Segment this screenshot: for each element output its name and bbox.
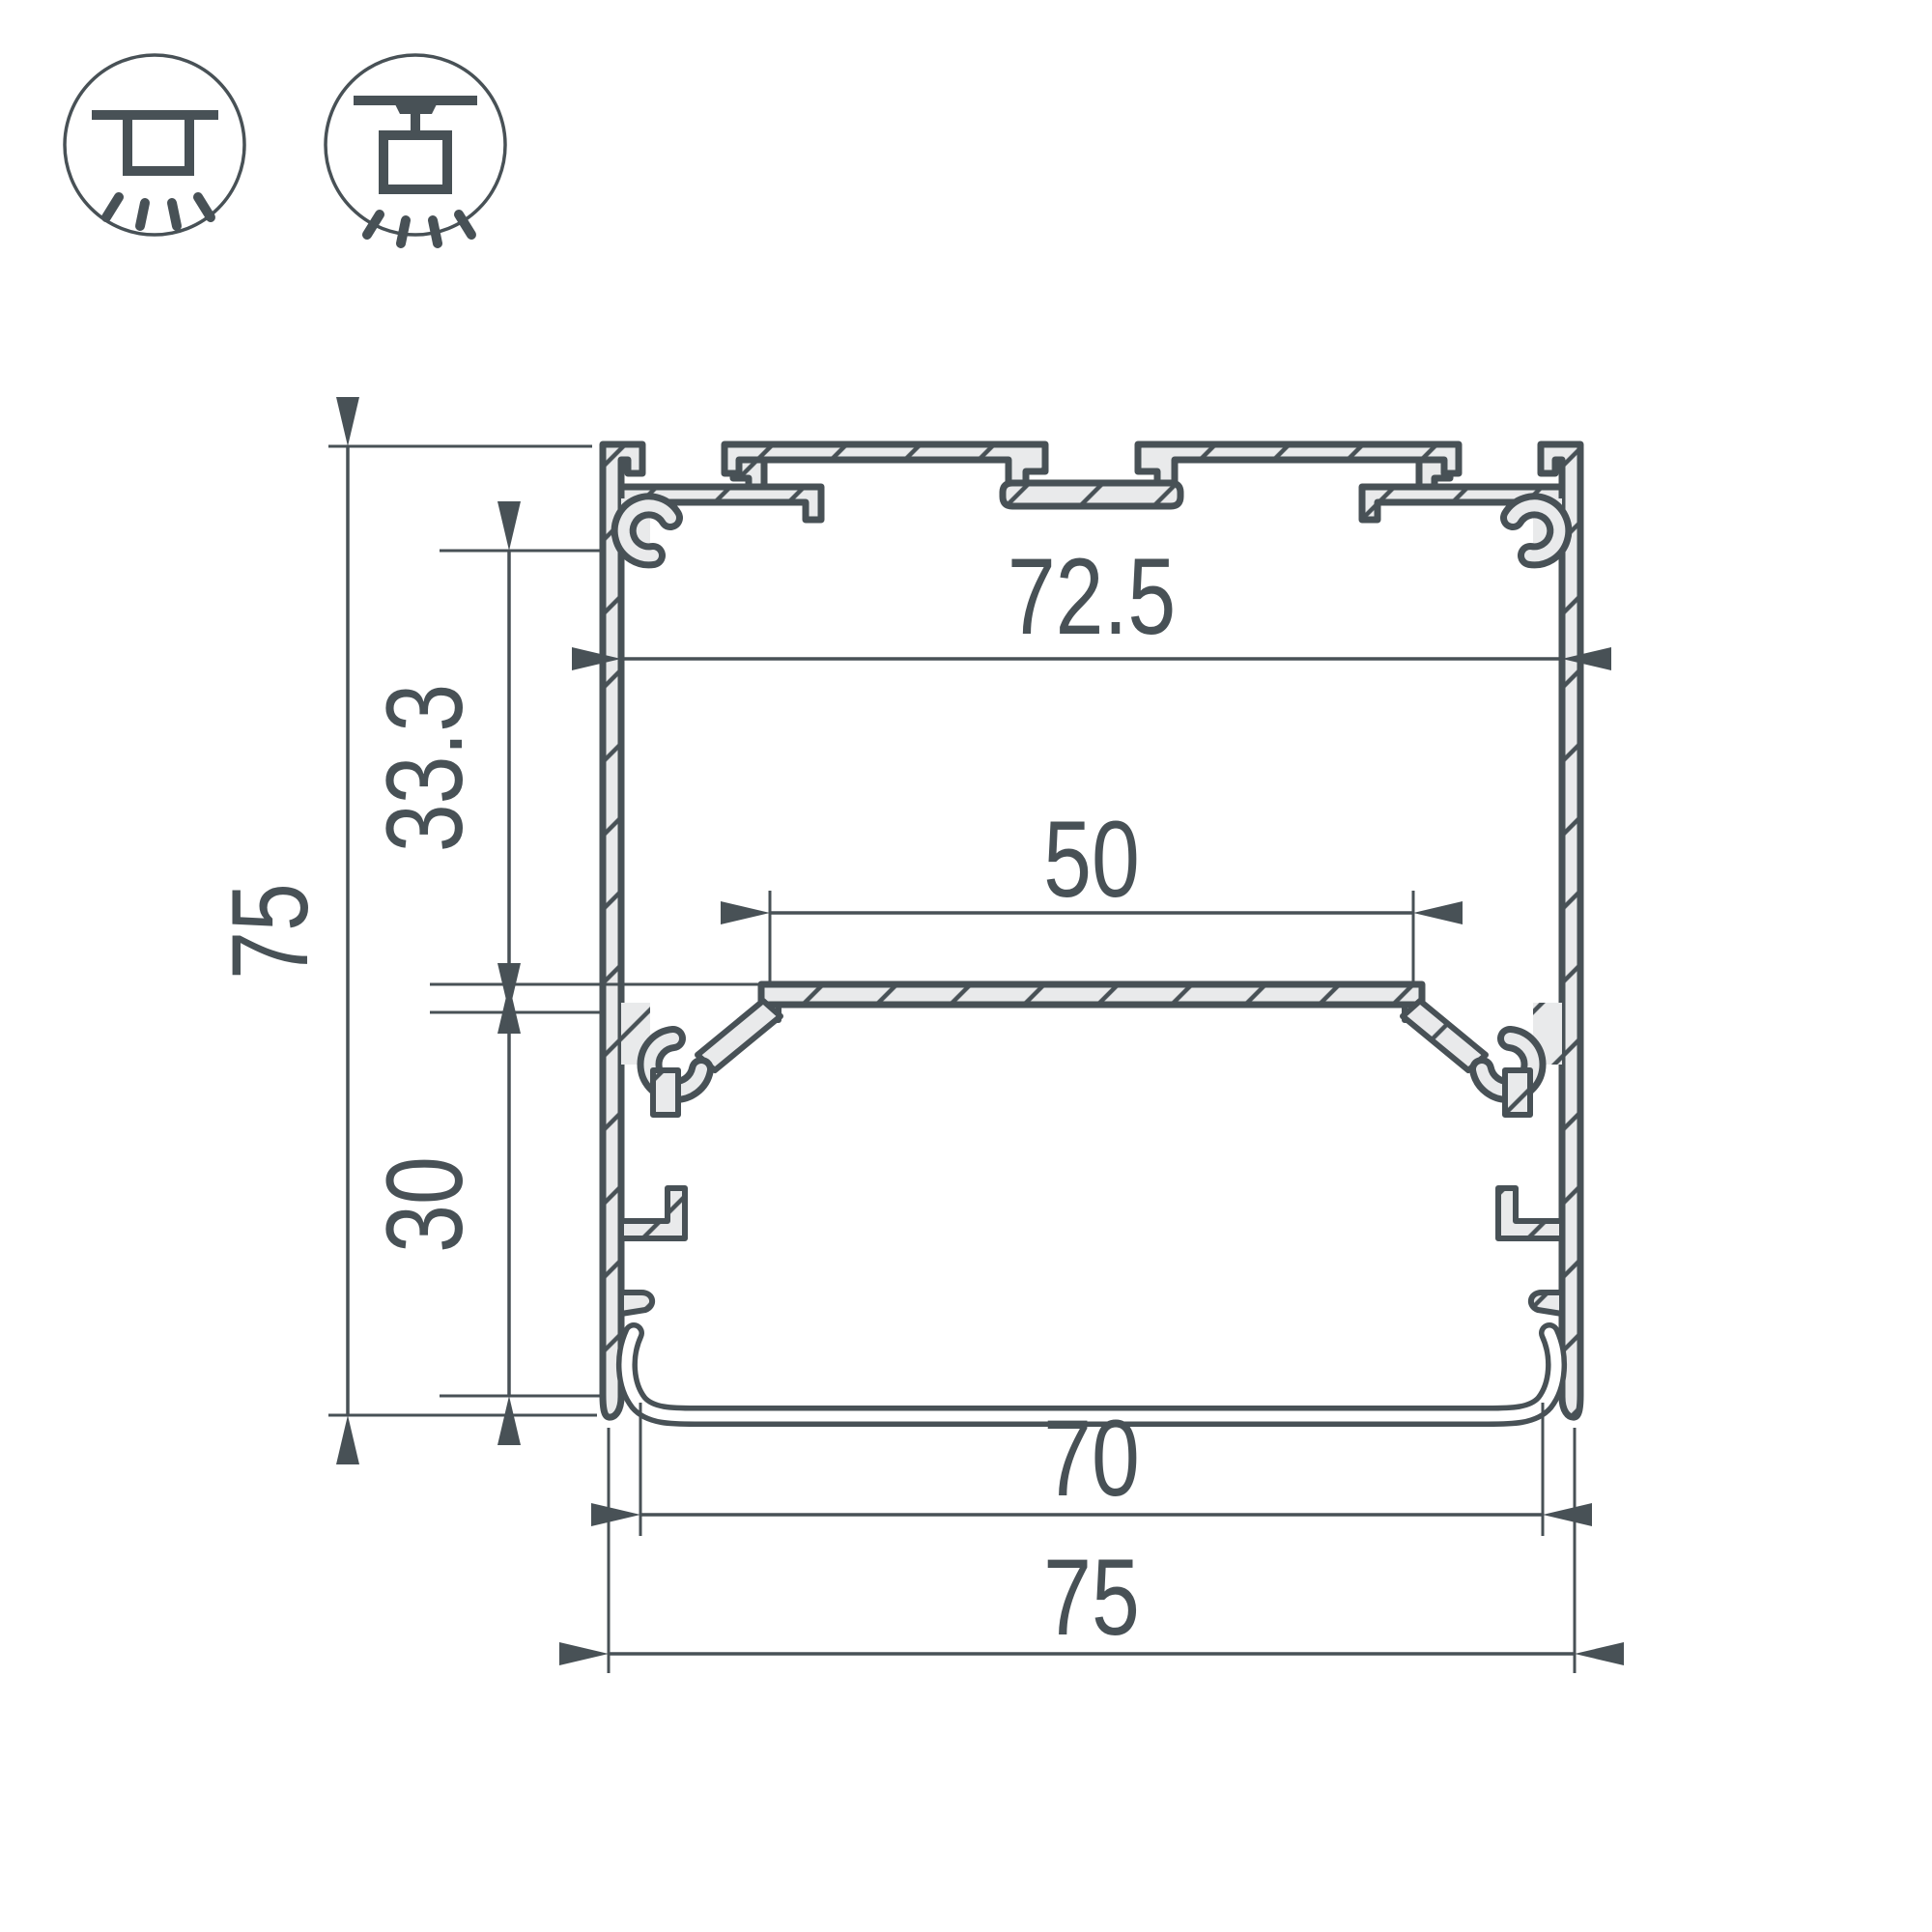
- dim-top-to-plate-label: 33.3: [365, 684, 486, 852]
- dim-led-plate-width: 50: [770, 800, 1413, 986]
- suspended-mount-icon: [326, 55, 505, 243]
- top-plate-left: [724, 444, 1045, 489]
- dim-overall-height-label: 75: [211, 883, 331, 980]
- diffuser-hook-right: [1531, 1293, 1562, 1314]
- right-wall: [1541, 444, 1580, 1417]
- dim-top-to-plate: 33.3: [365, 551, 761, 984]
- led-plate: [761, 984, 1422, 1005]
- boss-foot-right: [1505, 1070, 1530, 1115]
- dim-plate-to-bottom: 30: [365, 1012, 603, 1396]
- technical-drawing-page: 72.5 50 33.3 30 75: [0, 0, 1932, 1932]
- mount-bracket: [393, 100, 439, 114]
- left-wall: [603, 444, 642, 1417]
- top-slot-base: [1003, 483, 1180, 506]
- clip-right: [1498, 1188, 1562, 1238]
- dim-inner-width-label: 72.5: [1008, 537, 1176, 658]
- plate-strut-right: [1403, 1001, 1486, 1070]
- diffuser-hook-left: [621, 1293, 652, 1314]
- top-plate-right: [1138, 444, 1459, 489]
- plate-strut-left: [697, 1001, 781, 1070]
- surface-mount-icon: [65, 55, 244, 235]
- icon-circle: [326, 55, 505, 235]
- dim-inner-width: 72.5: [621, 537, 1562, 659]
- dim-overall-height: 75: [211, 446, 597, 1415]
- light-rays: [106, 197, 211, 226]
- drawing-canvas: 72.5 50 33.3 30 75: [0, 0, 1932, 1932]
- dim-led-plate-width-label: 50: [1043, 800, 1140, 921]
- mounting-icons: [65, 55, 505, 243]
- boss-foot-left: [653, 1070, 678, 1115]
- luminaire-box: [128, 115, 189, 171]
- dim-overall-width-label: 75: [1043, 1538, 1140, 1659]
- clip-left: [621, 1188, 685, 1238]
- dimensions: 72.5 50 33.3 30 75: [211, 446, 1575, 1673]
- dim-plate-to-bottom-label: 30: [365, 1156, 486, 1253]
- icon-circle: [65, 55, 244, 235]
- dim-diffuser-width-label: 70: [1043, 1399, 1140, 1520]
- luminaire-box: [384, 135, 447, 189]
